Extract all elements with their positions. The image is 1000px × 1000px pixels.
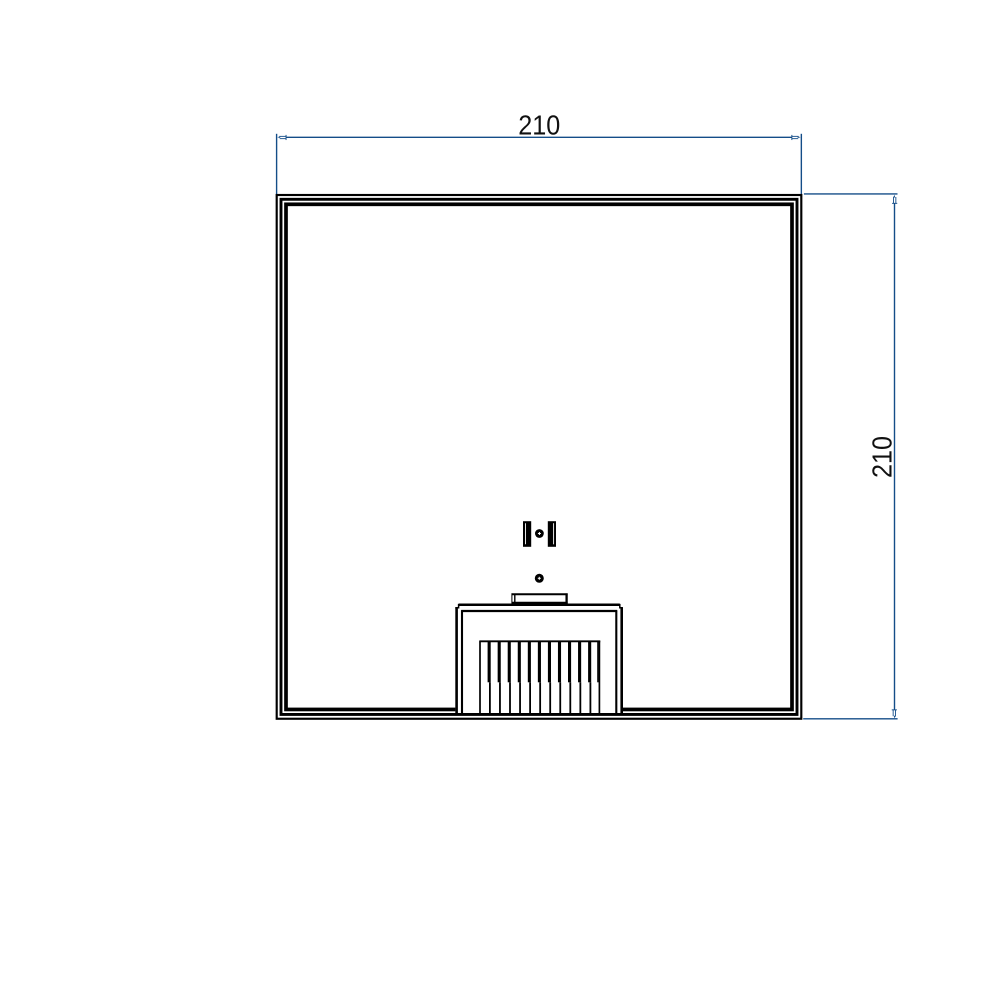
- svg-text:210: 210: [865, 436, 897, 478]
- svg-text:210: 210: [518, 108, 560, 140]
